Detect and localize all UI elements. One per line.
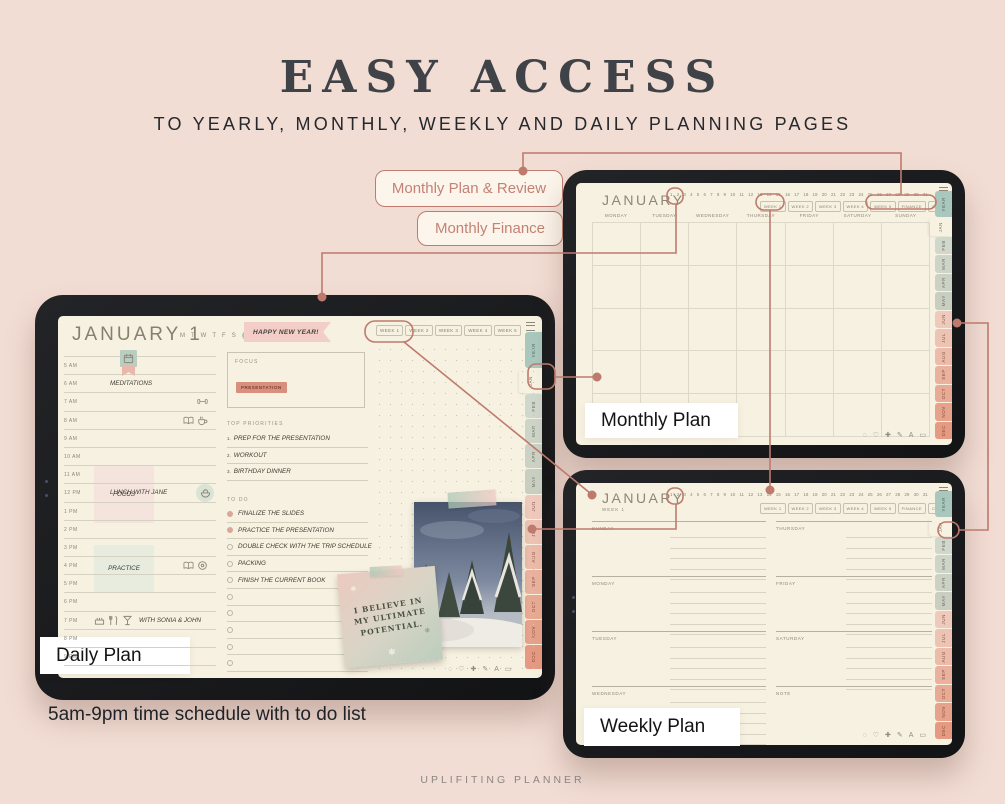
calendar-cell[interactable] [834, 351, 882, 394]
button-week-4[interactable]: WEEK 4 [464, 325, 491, 336]
tab-nov[interactable]: NOV [935, 703, 952, 720]
calendar-cell[interactable] [786, 266, 834, 309]
calendar-cell[interactable] [689, 351, 737, 394]
button-week-4[interactable]: WEEK 4 [843, 201, 869, 212]
calendar-cell[interactable] [786, 223, 834, 266]
date-24[interactable]: 24 [858, 492, 863, 497]
todo-checkbox[interactable] [227, 561, 233, 567]
ruled-line [670, 669, 766, 679]
ruled-line [846, 549, 932, 559]
tab-sep[interactable]: SEP [935, 666, 952, 683]
tab-label: APR [941, 577, 946, 588]
day-label: NOTE [776, 691, 791, 696]
day-header-saturday: SATURDAY [833, 213, 881, 218]
todo-checkbox[interactable] [227, 610, 233, 616]
date-20[interactable]: 20 [822, 492, 827, 497]
time-label: 5 AM [64, 363, 77, 369]
date-1[interactable]: 1 [670, 192, 673, 197]
priority-number: 3. [227, 469, 231, 474]
ruled-line [670, 604, 766, 614]
date-26[interactable]: 26 [877, 492, 882, 497]
date-8[interactable]: 8 [717, 192, 720, 197]
date-21[interactable]: 21 [831, 192, 836, 197]
handwritten-note: WITH SONIA & JOHN [139, 617, 201, 624]
tab-may[interactable]: MAY [935, 292, 952, 309]
todo-text: PACKING [238, 560, 266, 567]
page-toolbar: ◌♡✚✎A▭ [863, 732, 927, 740]
date-22[interactable]: 22 [840, 492, 845, 497]
tab-label: FEB [941, 240, 946, 251]
weekly-block-tuesday[interactable]: TUESDAY [592, 631, 766, 686]
todo-checkbox[interactable] [227, 594, 233, 600]
weekday-letter: M [180, 333, 185, 339]
cake-icon [94, 615, 105, 626]
calendar-cell[interactable] [882, 266, 930, 309]
time-label: 7 AM [64, 399, 77, 405]
todo-checkbox[interactable] [227, 577, 233, 583]
camera-dot [572, 610, 575, 613]
date-16[interactable]: 16 [785, 192, 790, 197]
calendar-cell[interactable] [834, 223, 882, 266]
priority-number: 2. [227, 453, 231, 458]
date-9[interactable]: 9 [724, 192, 727, 197]
time-label: 3 PM [64, 545, 78, 551]
camera-dot [45, 480, 48, 483]
tab-jun[interactable]: JUN [935, 611, 952, 628]
date-10[interactable]: 10 [730, 192, 735, 197]
button-finance[interactable]: FINANCE [898, 201, 926, 212]
button-week-3[interactable]: WEEK 3 [815, 201, 841, 212]
button-week-2[interactable]: WEEK 2 [788, 201, 814, 212]
day-header-wednesday: WEDNESDAY [689, 213, 737, 218]
label-text: Weekly Plan [600, 716, 705, 738]
button-week-5[interactable]: WEEK 5 [494, 325, 521, 336]
priority-number: 1. [227, 436, 231, 441]
calendar-cell[interactable] [834, 309, 882, 352]
date-26[interactable]: 26 [877, 192, 882, 197]
tab-label: NOV [941, 406, 946, 418]
ruled-line [670, 538, 766, 548]
schedule-row-7am[interactable]: 7 AM [64, 393, 216, 411]
top-priorities: TOP PRIORITIES 1.PREP FOR THE PRESENTATI… [227, 421, 368, 481]
coffee-icon [197, 415, 208, 426]
label-text: Monthly Plan [601, 410, 711, 432]
monthly-week-buttons: WEEK 1WEEK 2WEEK 3WEEK 4WEEK 5FINANCECHE… [760, 201, 952, 212]
date-18[interactable]: 18 [803, 192, 808, 197]
calendar-cell[interactable] [641, 309, 689, 352]
quote-text: I BELIEVE IN MY ULTIMATE POTENTIAL. [346, 594, 434, 640]
date-12[interactable]: 12 [748, 492, 753, 497]
calendar-cell[interactable] [689, 223, 737, 266]
day-header-sunday: SUNDAY [882, 213, 930, 218]
tab-nov[interactable]: NOV [935, 403, 952, 420]
tab-year[interactable]: YEAR [935, 491, 952, 517]
calendar-cell[interactable] [593, 309, 641, 352]
pen-icon[interactable]: ✎ [897, 432, 903, 440]
weekly-date-strip: 1234567891011121314151617181920212223242… [670, 492, 928, 497]
menu-icon[interactable] [526, 322, 535, 331]
tab-may[interactable]: MAY [935, 592, 952, 609]
button-finance[interactable]: FINANCE [898, 503, 926, 514]
date-13[interactable]: 13 [757, 492, 762, 497]
date-16[interactable]: 16 [785, 492, 790, 497]
time-label: 7 PM [64, 618, 78, 624]
schedule-row-12pm[interactable]: 12 PMLUNCH WITH JANE [64, 484, 216, 502]
tab-oct[interactable]: OCT [935, 385, 952, 402]
lasso-icon[interactable]: ◌ [863, 432, 867, 440]
date-12[interactable]: 12 [748, 192, 753, 197]
washi-tape [370, 565, 402, 577]
pen-icon[interactable]: ✎ [897, 732, 903, 740]
ruled-line [670, 528, 766, 538]
calendar-cell[interactable] [882, 351, 930, 394]
date-4[interactable]: 4 [690, 192, 693, 197]
tab-dec[interactable]: DEC [935, 422, 952, 439]
tab-label: JUL [941, 633, 946, 643]
date-27[interactable]: 27 [886, 192, 891, 197]
ruled-line [670, 659, 766, 669]
schedule-row-7pm[interactable]: 7 PMWITH SONIA & JOHN [64, 612, 216, 630]
date-11[interactable]: 11 [739, 492, 744, 497]
date-24[interactable]: 24 [858, 192, 863, 197]
salad-icon [200, 487, 211, 498]
date-5[interactable]: 5 [697, 192, 700, 197]
priority-text: BIRTHDAY DINNER [234, 468, 291, 475]
date-11[interactable]: 11 [739, 192, 744, 197]
priority-item[interactable]: 3.BIRTHDAY DINNER [227, 464, 368, 481]
page-title: EASY ACCESS [0, 52, 1005, 103]
day-header-tuesday: TUESDAY [640, 213, 688, 218]
schedule-row-6pm[interactable]: 6 PM [64, 593, 216, 611]
monthly-date-strip: 1234567891011121314151617181920212223242… [670, 192, 928, 197]
date-25[interactable]: 25 [868, 492, 873, 497]
todo-item[interactable]: DOUBLE CHECK WITH THE TRIP SCHEDULE [227, 539, 368, 556]
ruled-line [670, 693, 766, 703]
move-icon[interactable]: ✚ [885, 732, 891, 740]
day-header-monday: MONDAY [592, 213, 640, 218]
ruled-line [846, 528, 932, 538]
schedule-row-5pm[interactable]: 5 PM [64, 575, 216, 593]
calendar-cell[interactable] [834, 394, 882, 437]
tab-label: YEAR [941, 197, 946, 212]
calendar-cell[interactable] [882, 309, 930, 352]
time-label: 11 AM [64, 472, 80, 478]
weekly-block-saturday[interactable]: SATURDAY [776, 631, 932, 686]
date-5[interactable]: 5 [697, 492, 700, 497]
calendar-cell[interactable] [882, 394, 930, 437]
date-15[interactable]: 15 [776, 492, 781, 497]
date-19[interactable]: 19 [813, 192, 818, 197]
move-icon[interactable]: ✚ [885, 432, 891, 440]
date-7[interactable]: 7 [710, 192, 713, 197]
tab-jun[interactable]: JUN [935, 311, 952, 328]
date-25[interactable]: 25 [868, 192, 873, 197]
ruled-line [846, 559, 932, 569]
button-week-1[interactable]: WEEK 1 [376, 325, 403, 336]
weekly-block-monday[interactable]: MONDAY [592, 576, 766, 631]
calendar-cell[interactable] [737, 266, 785, 309]
tab-mar[interactable]: MAR [935, 255, 952, 272]
calendar-cell[interactable] [737, 309, 785, 352]
todo-checkbox[interactable] [227, 660, 233, 666]
tab-label: AUG [941, 351, 946, 363]
todo-text: PRACTICE THE PRESENTATION [238, 527, 334, 534]
tab-label: OCT [941, 688, 946, 699]
date-18[interactable]: 18 [803, 492, 808, 497]
schedule-row-8pm[interactable]: 8 PM [64, 630, 216, 648]
tab-aug[interactable]: AUG [935, 648, 952, 665]
date-17[interactable]: 17 [794, 492, 799, 497]
todo-label: TO DO [227, 497, 368, 503]
ruled-line [670, 638, 766, 648]
button-week-2[interactable]: WEEK 2 [405, 325, 432, 336]
schedule-row-9am[interactable]: 9 AM [64, 430, 216, 448]
calendar-cell[interactable] [786, 351, 834, 394]
tab-label: DEC [941, 425, 946, 436]
callout-label: Monthly Finance [435, 220, 545, 237]
time-label: 5 PM [64, 581, 78, 587]
snowflake-icon: ❄ [388, 647, 396, 659]
time-label: 1 PM [64, 509, 78, 515]
calendar-cell[interactable] [641, 266, 689, 309]
date-10[interactable]: 10 [730, 492, 735, 497]
tab-jul[interactable]: JUL [935, 629, 952, 646]
time-label: 10 AM [64, 454, 81, 460]
tab-feb[interactable]: FEB [935, 237, 952, 254]
tab-mar[interactable]: MAR [935, 555, 952, 572]
button-week-4[interactable]: WEEK 4 [843, 503, 869, 514]
tab-sep[interactable]: SEP [935, 366, 952, 383]
time-label: 8 PM [64, 636, 78, 642]
heart-icon[interactable]: ♡ [458, 666, 464, 674]
handwritten-note: MEDITATIONS [110, 380, 152, 387]
schedule-row-2pm[interactable]: 2 PM [64, 521, 216, 539]
ruled-line [670, 549, 766, 559]
ruled-line [670, 648, 766, 658]
button-week-3[interactable]: WEEK 3 [815, 503, 841, 514]
ruled-line [846, 583, 932, 593]
weekly-block-thursday[interactable]: THURSDAY [776, 521, 932, 576]
tab-year[interactable]: YEAR [935, 191, 952, 217]
tab-label: MAR [941, 558, 946, 570]
daily-schedule: 5 AM6 AMMEDITATIONS7 AM8 AM9 AM10 AM11 A… [64, 356, 216, 666]
tab-jan[interactable]: JAN [929, 518, 952, 535]
date-30[interactable]: 30 [914, 492, 919, 497]
date-23[interactable]: 23 [849, 492, 854, 497]
dumbbell-icon [197, 396, 208, 407]
focus-tag[interactable]: PRESENTATION [236, 382, 287, 393]
weekday-letter: T [212, 333, 216, 339]
todo-checkbox[interactable] [227, 544, 233, 550]
time-label: 12 PM [64, 490, 81, 496]
schedule-row-5am[interactable]: 5 AM [64, 357, 216, 375]
tab-oct[interactable]: OCT [935, 685, 952, 702]
day-label: SATURDAY [776, 636, 805, 641]
photo-icon[interactable]: ▭ [919, 732, 926, 740]
weekly-block-friday[interactable]: FRIDAY [776, 576, 932, 631]
text-icon[interactable]: A [909, 732, 914, 740]
pen-icon[interactable]: ✎ [482, 666, 488, 674]
tab-label: JUN [941, 614, 946, 625]
date-2[interactable]: 2 [677, 192, 680, 197]
date-31[interactable]: 31 [923, 492, 928, 497]
monthly-month-tabs: YEARJANFEBMARAPRMAYJUNJULAUGSEPOCTNOVDEC [935, 191, 952, 440]
ruled-line [670, 559, 766, 569]
label-weekly-plan: Weekly Plan [584, 708, 740, 746]
calendar-cell[interactable] [593, 266, 641, 309]
schedule-row-6am[interactable]: 6 AMMEDITATIONS [64, 375, 216, 393]
calendar-cell[interactable] [641, 351, 689, 394]
button-week-5[interactable]: WEEK 5 [870, 201, 896, 212]
calendar-cell[interactable] [689, 309, 737, 352]
tab-jan[interactable]: JAN [929, 218, 952, 235]
date-19[interactable]: 19 [813, 492, 818, 497]
todo-item[interactable]: PRACTICE THE PRESENTATION [227, 523, 368, 540]
date-4[interactable]: 4 [690, 492, 693, 497]
calendar-cell[interactable] [593, 351, 641, 394]
button-week-1[interactable]: WEEK 1 [760, 503, 786, 514]
date-20[interactable]: 20 [822, 192, 827, 197]
button-week-1[interactable]: WEEK 1 [760, 201, 786, 212]
schedule-row-9pm[interactable]: 9 PM [64, 648, 216, 666]
priority-item[interactable]: 1.PREP FOR THE PRESENTATION [227, 431, 368, 448]
heart-icon[interactable]: ♡ [873, 732, 879, 740]
button-week-5[interactable]: WEEK 5 [870, 503, 896, 514]
date-30[interactable]: 30 [914, 192, 919, 197]
date-9[interactable]: 9 [724, 492, 727, 497]
date-21[interactable]: 21 [831, 492, 836, 497]
day-label: FRIDAY [776, 581, 796, 586]
tab-label: JUL [941, 333, 946, 343]
calendar-cell[interactable] [834, 266, 882, 309]
callout-monthly-finance: Monthly Finance [417, 211, 563, 246]
button-week-2[interactable]: WEEK 2 [788, 503, 814, 514]
calendar-cell[interactable] [882, 223, 930, 266]
lasso-icon[interactable]: ◌ [448, 666, 452, 674]
tab-label: AUG [941, 651, 946, 663]
move-icon[interactable]: ✚ [470, 666, 476, 674]
calendar-cell[interactable] [689, 266, 737, 309]
date-6[interactable]: 6 [703, 492, 706, 497]
weekly-block-sunday[interactable]: SUNDAY [592, 521, 766, 576]
daily-week-buttons: WEEK 1WEEK 2WEEK 3WEEK 4WEEK 5 [376, 325, 521, 336]
schedule-row-4pm[interactable]: 4 PM [64, 557, 216, 575]
photo-icon[interactable]: ▭ [919, 432, 926, 440]
date-31[interactable]: 31 [923, 192, 928, 197]
schedule-row-3pm[interactable]: 3 PM [64, 539, 216, 557]
ruled-line [670, 614, 766, 624]
tab-aug[interactable]: AUG [935, 348, 952, 365]
todo-item[interactable]: PACKING [227, 556, 368, 573]
date-28[interactable]: 28 [895, 492, 900, 497]
date-23[interactable]: 23 [849, 192, 854, 197]
todo-checkbox[interactable] [227, 644, 233, 650]
lasso-icon[interactable]: ◌ [863, 732, 867, 740]
calendar-cell[interactable] [593, 223, 641, 266]
tab-label: NOV [941, 706, 946, 718]
date-2[interactable]: 2 [677, 492, 680, 497]
todo-text: DOUBLE CHECK WITH THE TRIP SCHEDULE [238, 543, 372, 550]
tab-label: DEC [941, 725, 946, 736]
text-icon[interactable]: A [909, 432, 914, 440]
photo-icon[interactable]: ▭ [505, 666, 512, 674]
salad-circle [196, 484, 214, 502]
calendar-cell[interactable] [786, 394, 834, 437]
day-header-thursday: THURSDAY [737, 213, 785, 218]
schedule-row-11am[interactable]: 11 AM [64, 466, 216, 484]
todo-checkbox[interactable] [227, 527, 233, 533]
tab-label: MAY [941, 595, 946, 606]
date-28[interactable]: 28 [895, 192, 900, 197]
weekly-week-label: WEEK 1 [602, 507, 625, 512]
todo-checkbox[interactable] [227, 511, 233, 517]
tab-jul[interactable]: JUL [935, 329, 952, 346]
date-29[interactable]: 29 [904, 192, 909, 197]
date-7[interactable]: 7 [710, 492, 713, 497]
tab-label: JAN [938, 522, 943, 532]
calendar-cell[interactable] [737, 223, 785, 266]
date-6[interactable]: 6 [703, 192, 706, 197]
callout-monthly-plan-review: Monthly Plan & Review [375, 170, 563, 207]
schedule-row-1pm[interactable]: 1 PM [64, 503, 216, 521]
banner-text: HAPPY NEW YEAR! [253, 329, 319, 336]
calendar-cell[interactable] [786, 309, 834, 352]
todo-item[interactable]: FINALIZE THE SLIDES [227, 506, 368, 523]
date-14[interactable]: 14 [767, 492, 772, 497]
schedule-row-8am[interactable]: 8 AM [64, 412, 216, 430]
tab-label: APR [941, 277, 946, 288]
schedule-row-10am[interactable]: 10 AM [64, 448, 216, 466]
tab-feb[interactable]: FEB [935, 537, 952, 554]
date-29[interactable]: 29 [904, 492, 909, 497]
happy-new-year-banner: HAPPY NEW YEAR! [244, 322, 331, 342]
handwritten-note: LUNCH WITH JANE [110, 489, 167, 496]
tab-apr[interactable]: APR [935, 574, 952, 591]
camera-dot [572, 596, 575, 599]
date-27[interactable]: 27 [886, 492, 891, 497]
tab-dec[interactable]: DEC [935, 722, 952, 739]
page-toolbar: ◌♡✚✎A▭ [448, 666, 512, 674]
todo-checkbox[interactable] [227, 627, 233, 633]
brand-footer: UPLIFITING PLANNER [0, 774, 1005, 786]
tab-apr[interactable]: APR [935, 274, 952, 291]
priority-item[interactable]: 2.WORKOUT [227, 448, 368, 465]
heart-icon[interactable]: ♡ [873, 432, 879, 440]
time-label: 9 PM [64, 654, 78, 660]
time-label: 4 PM [64, 563, 78, 569]
date-17[interactable]: 17 [794, 192, 799, 197]
date-3[interactable]: 3 [683, 492, 686, 497]
date-3[interactable]: 3 [683, 192, 686, 197]
calendar-cell[interactable] [641, 223, 689, 266]
date-1[interactable]: 1 [670, 492, 673, 497]
text-icon[interactable]: A [494, 666, 499, 674]
date-14[interactable]: 14 [767, 192, 772, 197]
tab-label: SEP [941, 669, 946, 680]
date-13[interactable]: 13 [757, 192, 762, 197]
todo-text: FINISH THE CURRENT BOOK [238, 577, 325, 584]
date-15[interactable]: 15 [776, 192, 781, 197]
priority-text: PREP FOR THE PRESENTATION [234, 435, 330, 442]
button-week-3[interactable]: WEEK 3 [435, 325, 462, 336]
tab-label: MAR [941, 258, 946, 270]
camera-dot [45, 494, 48, 497]
date-8[interactable]: 8 [717, 492, 720, 497]
calendar-cell[interactable] [737, 394, 785, 437]
calendar-bookmark-icon [120, 350, 137, 367]
calendar-cell[interactable] [737, 351, 785, 394]
date-22[interactable]: 22 [840, 192, 845, 197]
